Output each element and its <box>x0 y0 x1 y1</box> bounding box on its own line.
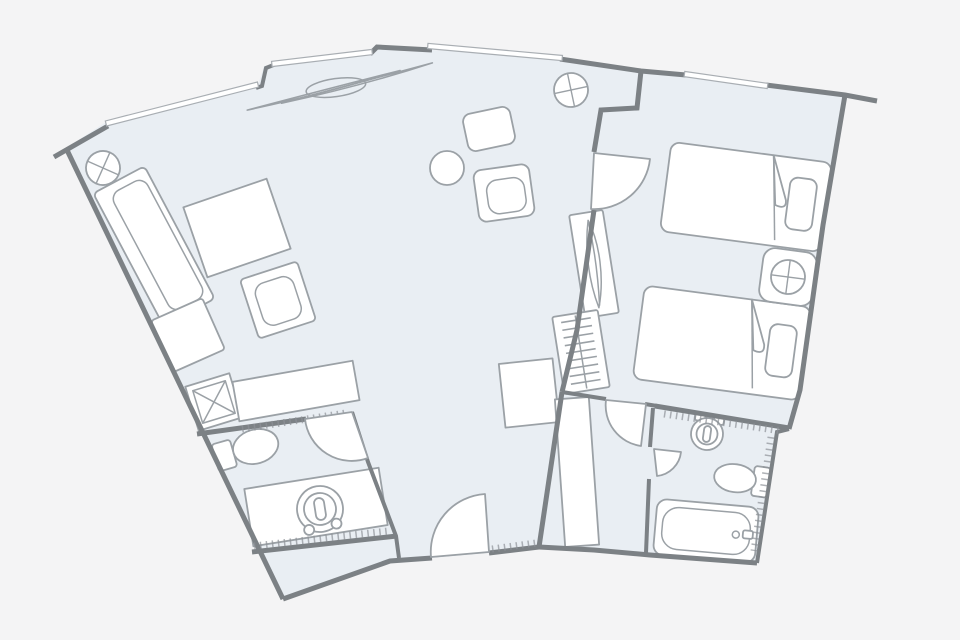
floor-plan <box>0 0 960 640</box>
cabinet <box>499 358 559 427</box>
round-coffee-table <box>430 151 464 185</box>
lounge-chair-2 <box>473 163 536 222</box>
bathtub <box>653 499 759 564</box>
